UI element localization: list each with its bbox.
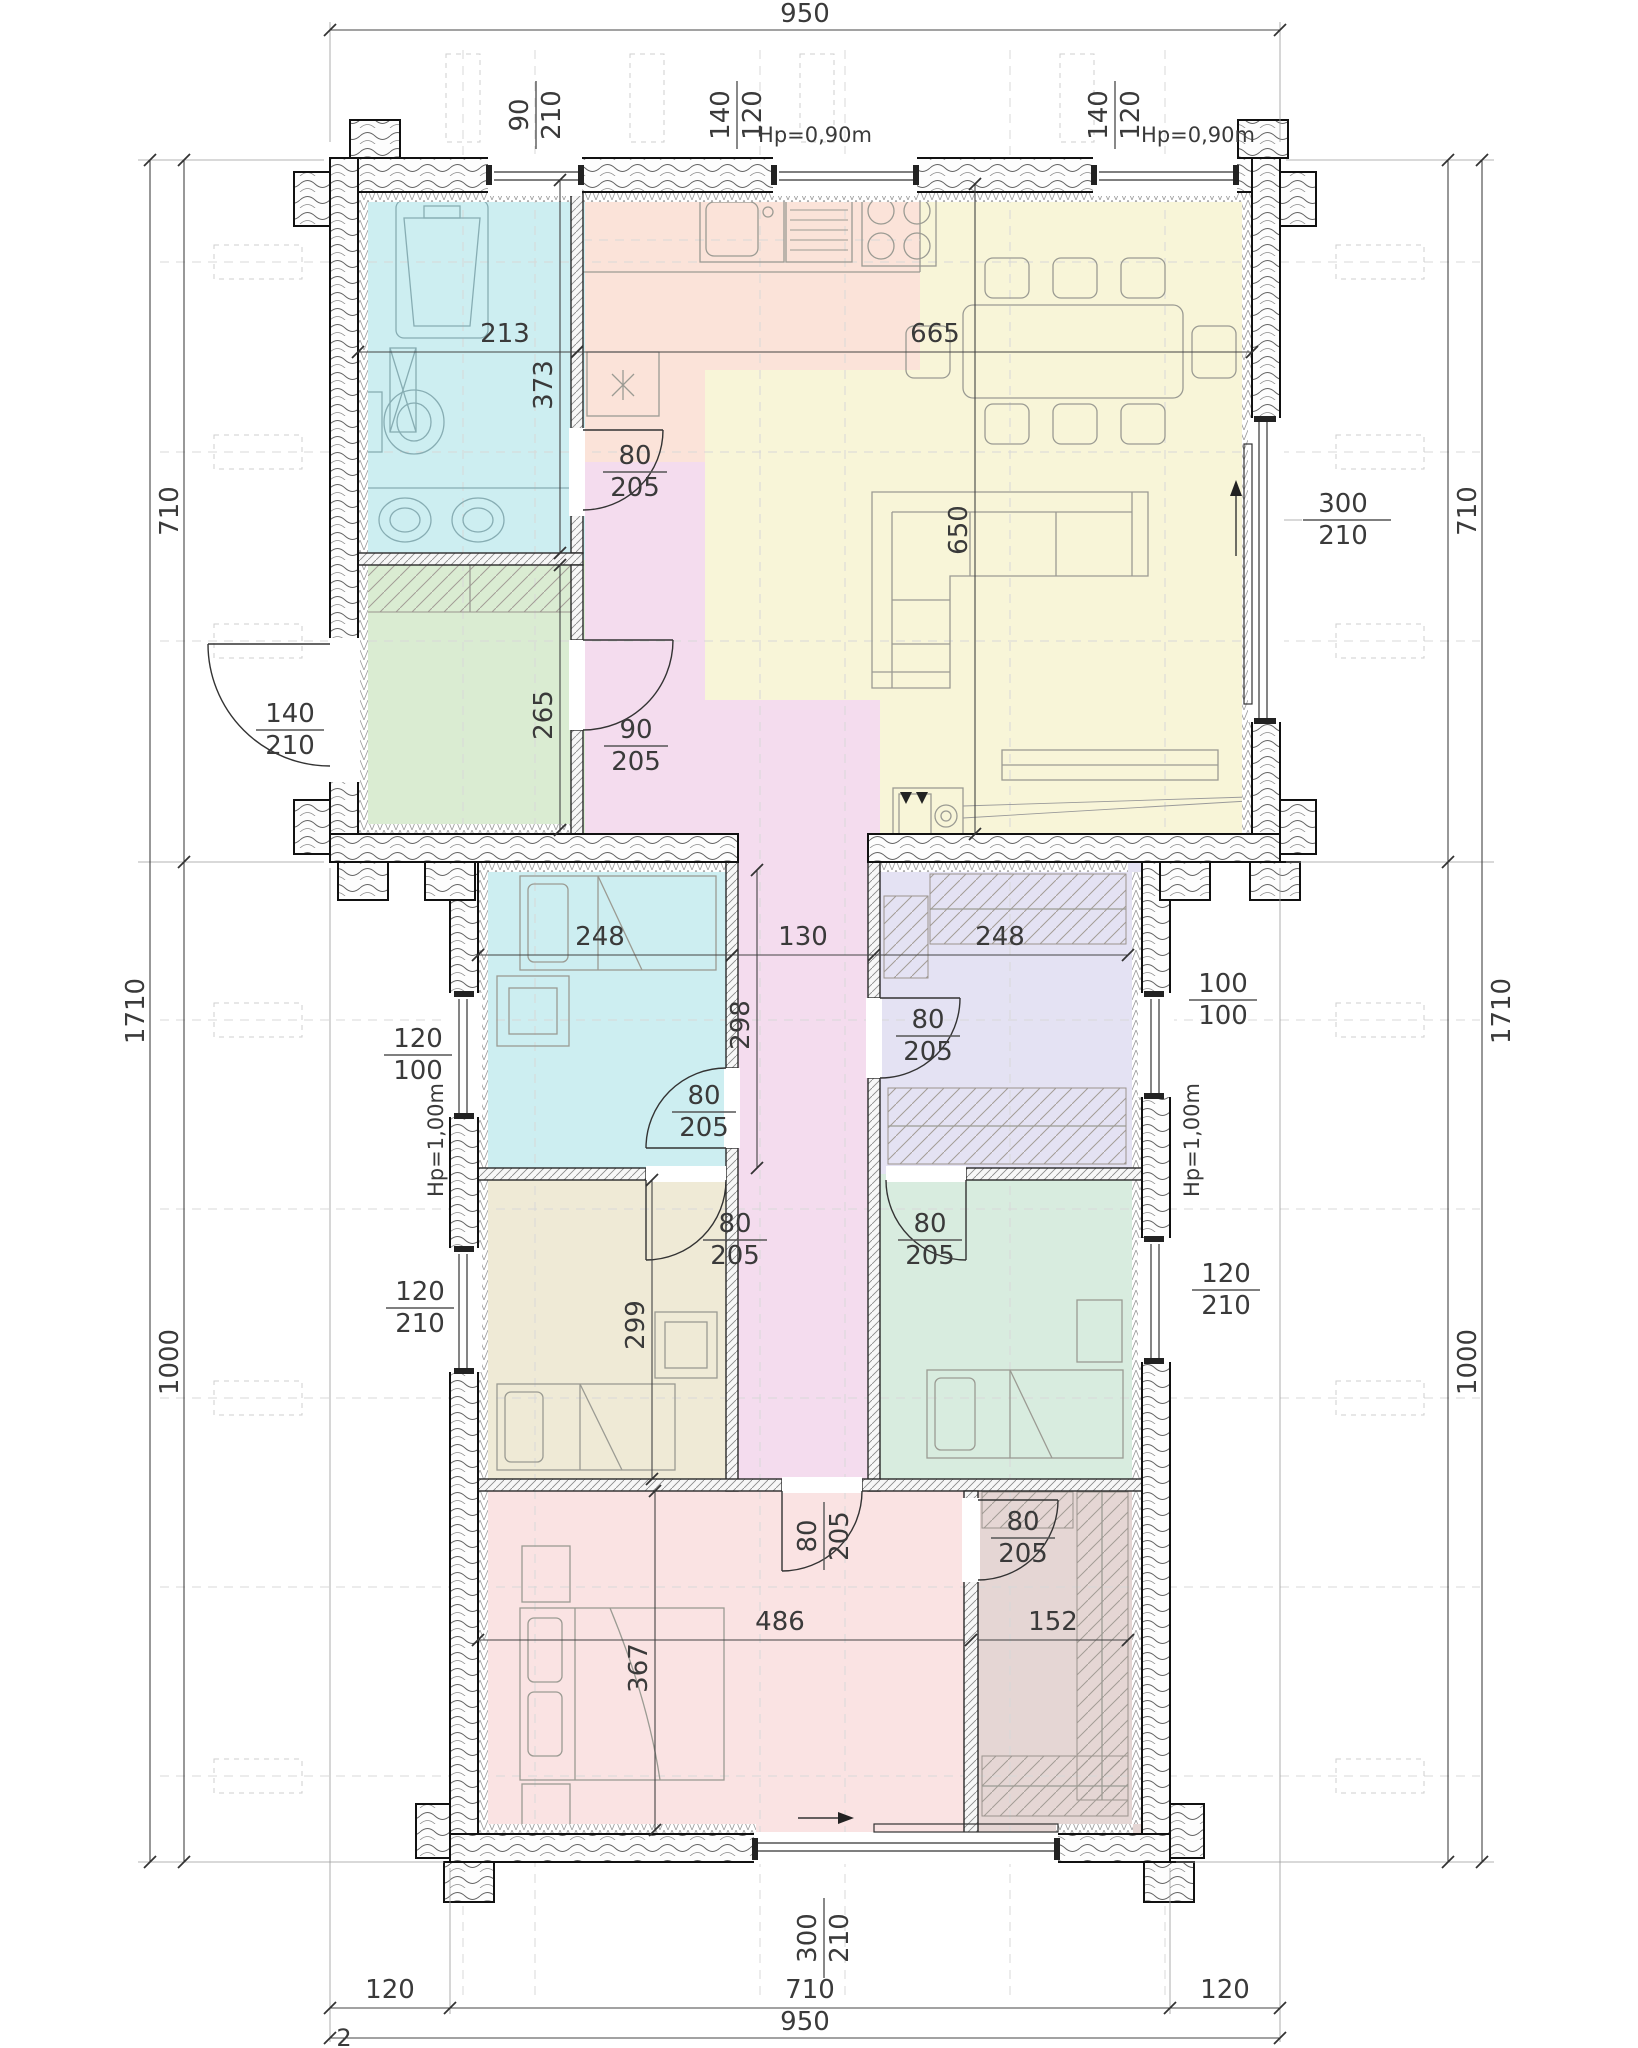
- svg-text:80: 80: [618, 441, 651, 471]
- svg-text:205: 205: [611, 747, 661, 777]
- svg-text:80: 80: [687, 1081, 720, 1111]
- svg-text:120: 120: [395, 1277, 445, 1307]
- svg-text:205: 205: [610, 473, 660, 503]
- dim-dress-w: 248: [975, 922, 1025, 952]
- window-dressing: [1138, 991, 1174, 1099]
- svg-text:90: 90: [505, 98, 535, 131]
- label-hp-kitchen: Hp=0,90m: [758, 123, 872, 147]
- svg-text:120: 120: [1201, 1259, 1251, 1289]
- room-bed2-fill: [472, 1174, 732, 1485]
- svg-text:140: 140: [1084, 90, 1114, 140]
- wardrobe-dressing-left: [884, 896, 928, 978]
- dim-bottom-right: 120: [1200, 1975, 1250, 2005]
- dim-living-h: 650: [944, 505, 974, 555]
- dim-right-bottom: 1000: [1453, 1329, 1483, 1395]
- svg-text:210: 210: [537, 90, 567, 140]
- wardrobe-dressing-top: [930, 874, 1126, 944]
- svg-text:300: 300: [793, 1913, 823, 1963]
- log-tab: [1170, 1804, 1204, 1858]
- window-kitchen: [771, 154, 919, 196]
- log-tab: [1144, 1862, 1194, 1902]
- svg-text:80: 80: [913, 1209, 946, 1239]
- log-tab: [1280, 800, 1316, 854]
- svg-text:710: 710: [155, 486, 185, 536]
- svg-text:Hp=1,00m: Hp=1,00m: [424, 1083, 448, 1197]
- wardrobe-dressing-bottom: [888, 1088, 1126, 1164]
- svg-text:80: 80: [718, 1209, 751, 1239]
- svg-text:205: 205: [905, 1241, 955, 1271]
- svg-text:80: 80: [1006, 1507, 1039, 1537]
- svg-text:299: 299: [621, 1300, 651, 1350]
- svg-text:1000: 1000: [155, 1329, 185, 1395]
- log-tab: [338, 862, 388, 900]
- svg-text:205: 205: [825, 1511, 855, 1561]
- grid-label: 2: [336, 2024, 351, 2048]
- dim-left-top: 710: [155, 486, 185, 536]
- window-dining: [1091, 154, 1239, 196]
- label-slide-living: 300 210: [1303, 489, 1391, 551]
- svg-text:210: 210: [825, 1913, 855, 1963]
- log-tab: [1250, 862, 1300, 900]
- svg-text:300: 300: [1318, 489, 1368, 519]
- log-tab: [350, 120, 400, 158]
- label-window-bed2: 120 210: [386, 1277, 454, 1339]
- window-bed3: [1138, 1236, 1174, 1364]
- svg-text:Hp=1,00m: Hp=1,00m: [1180, 1083, 1204, 1197]
- label-slide-master: 300 210: [793, 1898, 855, 1978]
- dim-bath-w: 213: [480, 319, 530, 349]
- log-tab: [425, 862, 475, 900]
- svg-text:1000: 1000: [1453, 1329, 1483, 1395]
- dim-closet-w: 152: [1028, 1607, 1078, 1637]
- wardrobe-closet-right: [1077, 1492, 1128, 1800]
- svg-text:210: 210: [265, 731, 315, 761]
- floor-plan-drawing: 950 120 710 120 950 2 1710 710 1000 710 …: [0, 0, 1638, 2048]
- svg-text:210: 210: [1201, 1291, 1251, 1321]
- label-entrance-door: 140 210: [256, 699, 324, 761]
- svg-text:140: 140: [706, 90, 736, 140]
- label-hp-dining: Hp=0,90m: [1141, 123, 1255, 147]
- svg-text:367: 367: [624, 1643, 654, 1693]
- dim-left-total: 1710: [121, 978, 151, 1044]
- dim-utility-h: 265: [529, 690, 559, 740]
- floor-plan-page: 950 120 710 120 950 2 1710 710 1000 710 …: [0, 0, 1638, 2048]
- dim-right-total: 1710: [1487, 978, 1517, 1044]
- svg-text:90: 90: [619, 715, 652, 745]
- log-tab: [444, 1862, 494, 1902]
- dim-bed2-h: 299: [621, 1300, 651, 1350]
- log-tab: [1280, 172, 1316, 226]
- svg-text:265: 265: [529, 690, 559, 740]
- svg-text:298: 298: [726, 1000, 756, 1050]
- svg-text:100: 100: [1198, 1001, 1248, 1031]
- svg-text:650: 650: [944, 505, 974, 555]
- label-window-bed1: 120 100: [384, 1024, 452, 1086]
- label-window-bath: 90 210: [505, 81, 567, 149]
- svg-text:205: 205: [710, 1241, 760, 1271]
- dim-bottom-mid: 710: [785, 1975, 835, 2005]
- log-tab: [1160, 862, 1210, 900]
- log-tab: [416, 1804, 450, 1858]
- svg-text:710: 710: [1453, 486, 1483, 536]
- svg-text:205: 205: [679, 1113, 729, 1143]
- dim-bed1-w: 248: [575, 922, 625, 952]
- label-hp-bed1: Hp=1,00m: [424, 1083, 448, 1197]
- window-bed2: [446, 1246, 482, 1374]
- label-window-dining: 140 120: [1084, 81, 1146, 149]
- dim-master-h: 367: [624, 1643, 654, 1693]
- svg-text:1710: 1710: [121, 978, 151, 1044]
- dim-bed1-h: 298: [726, 1000, 756, 1050]
- room-master-fill: [472, 1485, 970, 1840]
- wardrobe-closet-bottom: [982, 1756, 1128, 1816]
- window-bathroom: [486, 154, 584, 196]
- dim-hall-w: 130: [778, 922, 828, 952]
- dim-right-top: 710: [1453, 486, 1483, 536]
- svg-text:210: 210: [1318, 521, 1368, 551]
- svg-text:100: 100: [1198, 969, 1248, 999]
- svg-text:205: 205: [903, 1037, 953, 1067]
- dim-bottom-left: 120: [365, 1975, 415, 2005]
- svg-text:205: 205: [998, 1539, 1048, 1569]
- dim-top-total: 950: [780, 0, 830, 29]
- dim-master-w: 486: [755, 1607, 805, 1637]
- svg-text:210: 210: [395, 1309, 445, 1339]
- log-tab: [294, 800, 330, 854]
- utility-counter: [358, 565, 571, 612]
- label-hp-dressing: Hp=1,00m: [1180, 1083, 1204, 1197]
- svg-text:140: 140: [265, 699, 315, 729]
- dim-living-w: 665: [910, 319, 960, 349]
- svg-text:80: 80: [911, 1005, 944, 1035]
- svg-text:1710: 1710: [1487, 978, 1517, 1044]
- svg-text:373: 373: [529, 360, 559, 410]
- svg-text:80: 80: [793, 1519, 823, 1552]
- dim-left-bottom: 1000: [155, 1329, 185, 1395]
- dim-bottom-total: 950: [780, 2007, 830, 2037]
- svg-text:100: 100: [393, 1056, 443, 1086]
- log-tab: [294, 172, 330, 226]
- label-window-bed3: 120 210: [1192, 1259, 1260, 1321]
- dim-bath-h: 373: [529, 360, 559, 410]
- svg-text:120: 120: [393, 1024, 443, 1054]
- label-window-dressing: 100 100: [1189, 969, 1257, 1031]
